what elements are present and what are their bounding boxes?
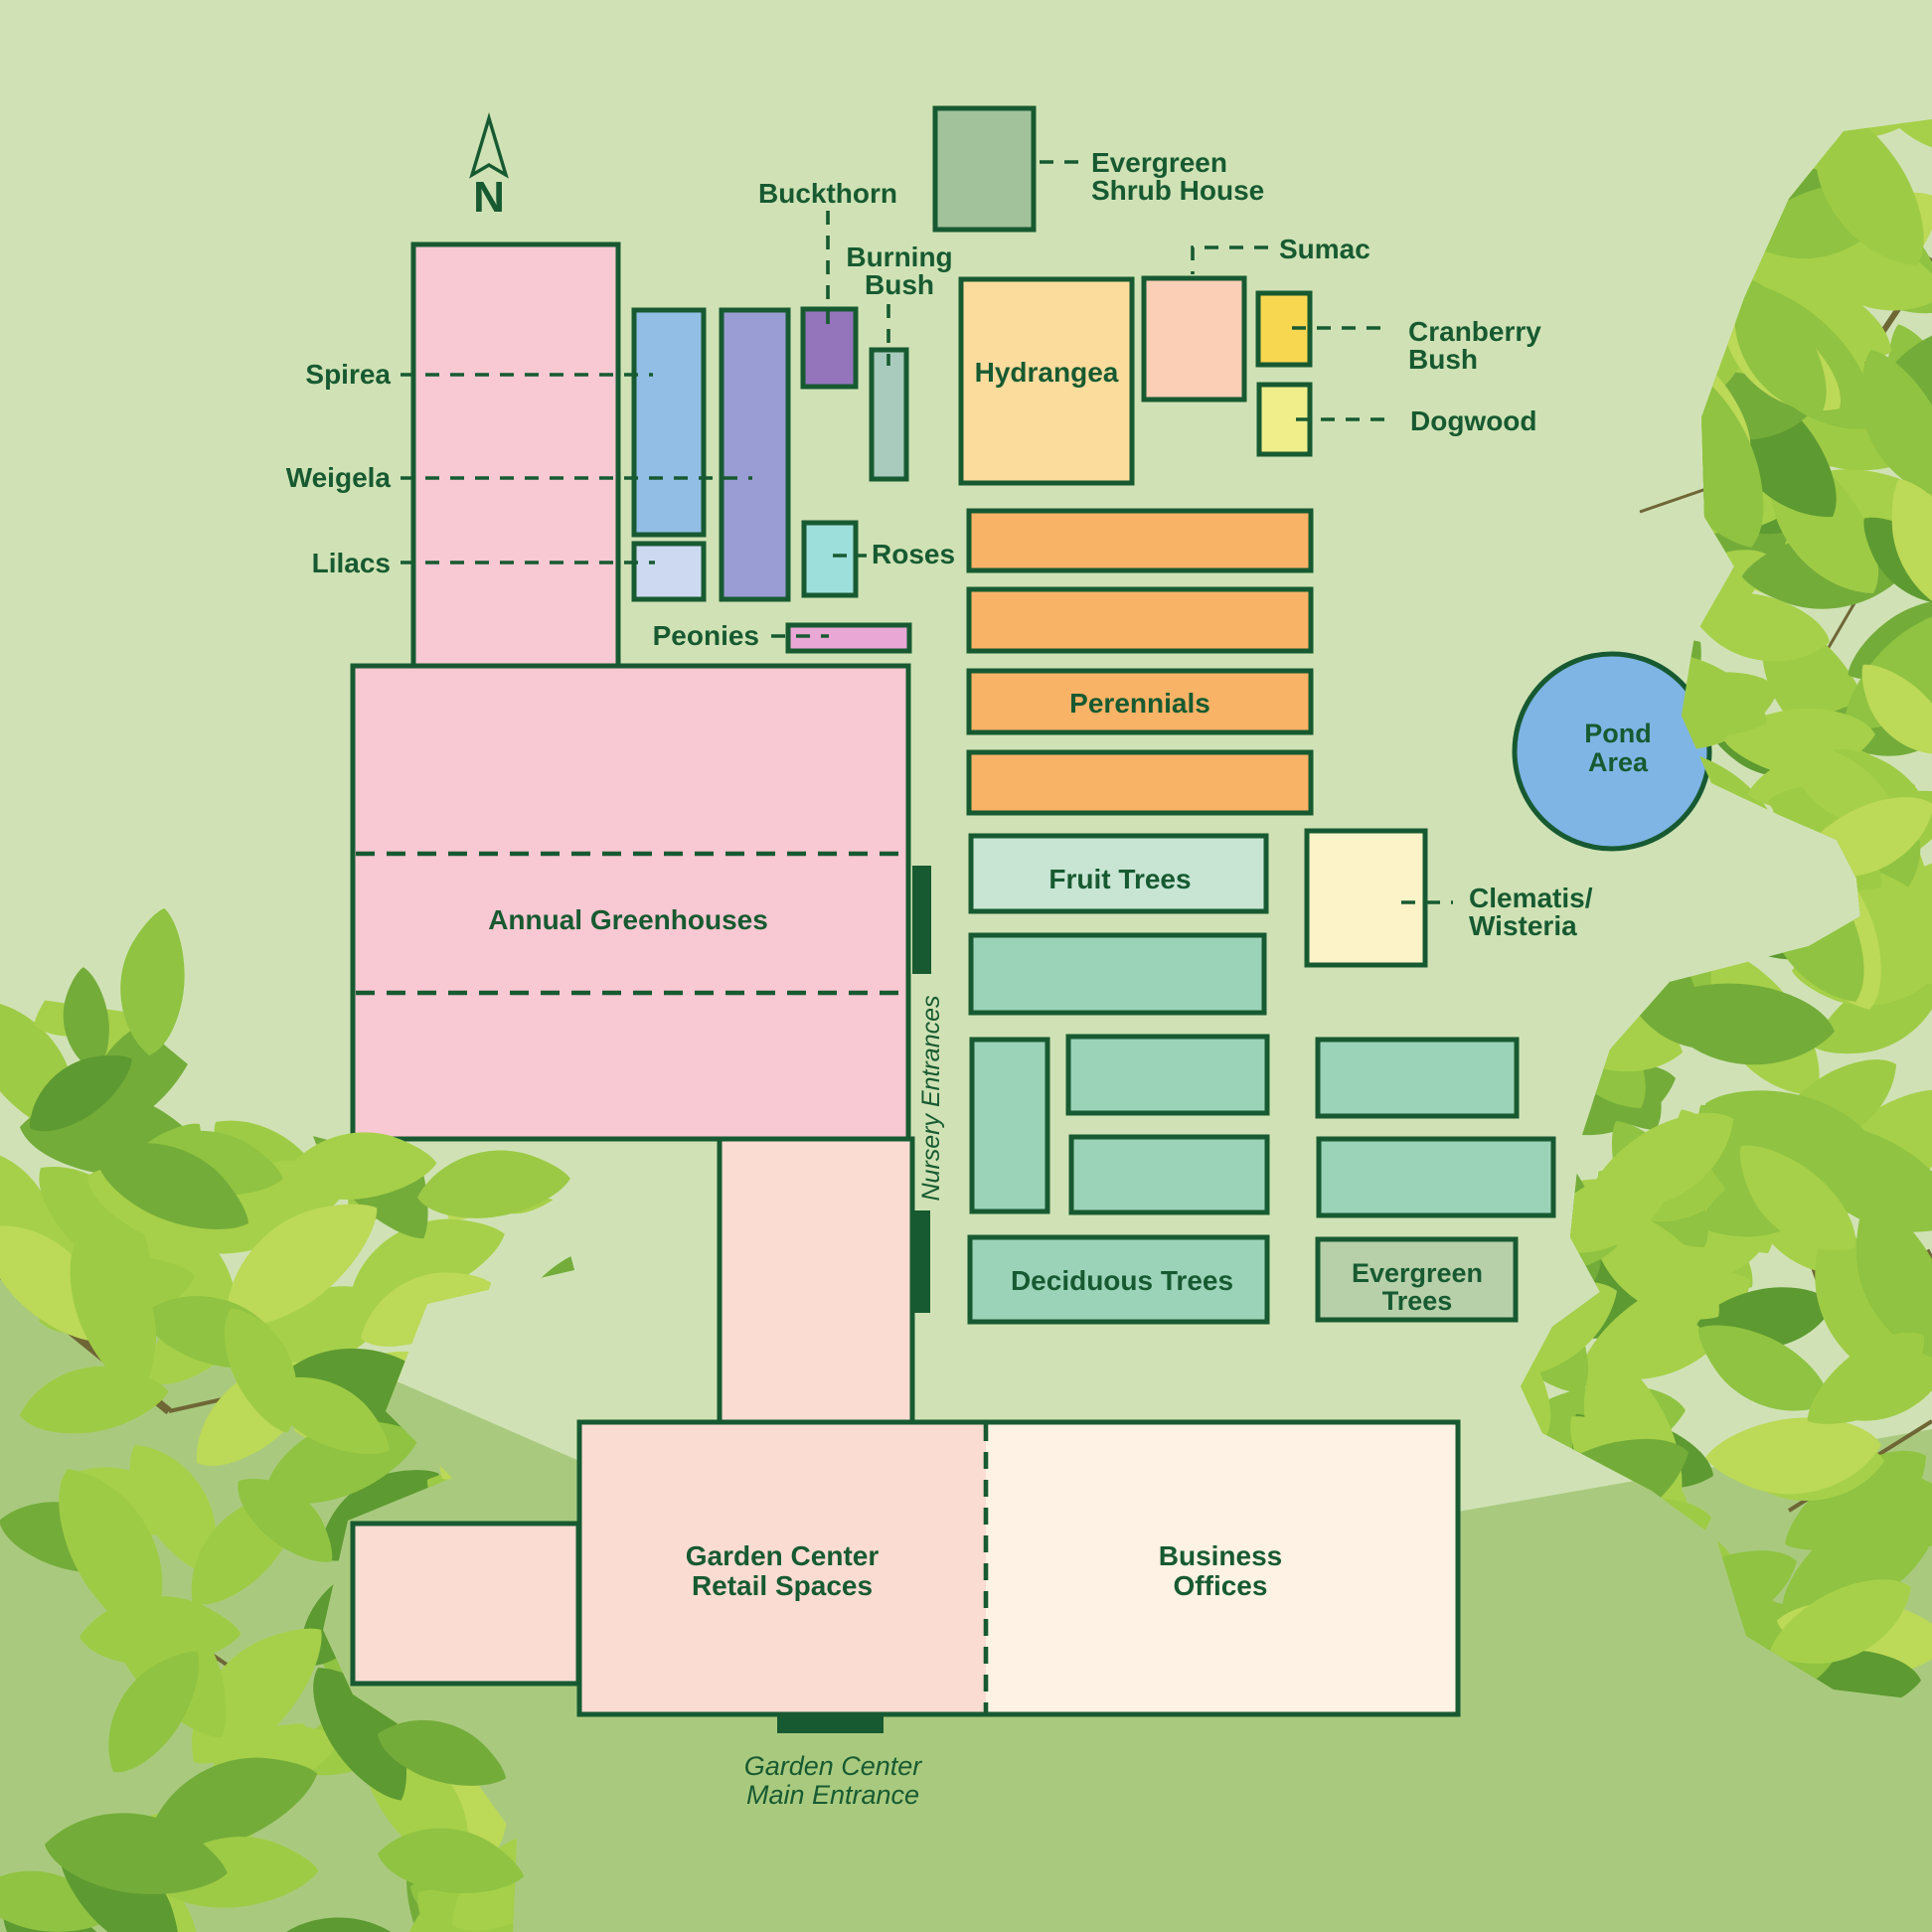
svg-text:Garden Center: Garden Center — [686, 1540, 880, 1571]
svg-text:Garden Center: Garden Center — [744, 1751, 923, 1781]
svg-text:Bush: Bush — [865, 269, 934, 300]
svg-text:Evergreen: Evergreen — [1352, 1258, 1483, 1288]
svg-text:Fruit Trees: Fruit Trees — [1048, 864, 1191, 894]
svg-text:Wisteria: Wisteria — [1469, 910, 1577, 941]
svg-text:N: N — [473, 173, 505, 222]
svg-text:Evergreen: Evergreen — [1091, 147, 1227, 178]
svg-text:Retail Spaces: Retail Spaces — [692, 1570, 873, 1601]
svg-text:Shrub House: Shrub House — [1091, 175, 1264, 206]
svg-text:Offices: Offices — [1174, 1570, 1268, 1601]
svg-text:Annual Greenhouses: Annual Greenhouses — [488, 904, 768, 935]
svg-text:Spirea: Spirea — [305, 359, 391, 390]
svg-text:Deciduous Trees: Deciduous Trees — [1011, 1265, 1233, 1296]
svg-text:Nursery Entrances: Nursery Entrances — [917, 995, 945, 1201]
svg-text:Weigela: Weigela — [286, 462, 392, 493]
svg-text:Business: Business — [1159, 1540, 1283, 1571]
svg-text:Pond: Pond — [1584, 719, 1652, 748]
svg-text:Buckthorn: Buckthorn — [758, 178, 897, 209]
svg-text:Cranberry: Cranberry — [1408, 316, 1541, 347]
svg-text:Dogwood: Dogwood — [1410, 405, 1537, 436]
svg-text:Trees: Trees — [1382, 1286, 1453, 1316]
svg-text:Hydrangea: Hydrangea — [975, 357, 1119, 388]
svg-text:Main Entrance: Main Entrance — [746, 1780, 919, 1810]
svg-text:Sumac: Sumac — [1279, 234, 1370, 264]
svg-text:Area: Area — [1588, 747, 1649, 777]
svg-text:Peonies: Peonies — [653, 620, 759, 651]
svg-text:Perennials: Perennials — [1069, 688, 1210, 719]
svg-text:Clematis/: Clematis/ — [1469, 883, 1593, 913]
svg-text:Lilacs: Lilacs — [312, 548, 391, 578]
svg-text:Bush: Bush — [1408, 344, 1478, 375]
svg-text:Roses: Roses — [872, 539, 955, 569]
svg-text:Burning: Burning — [846, 241, 952, 272]
